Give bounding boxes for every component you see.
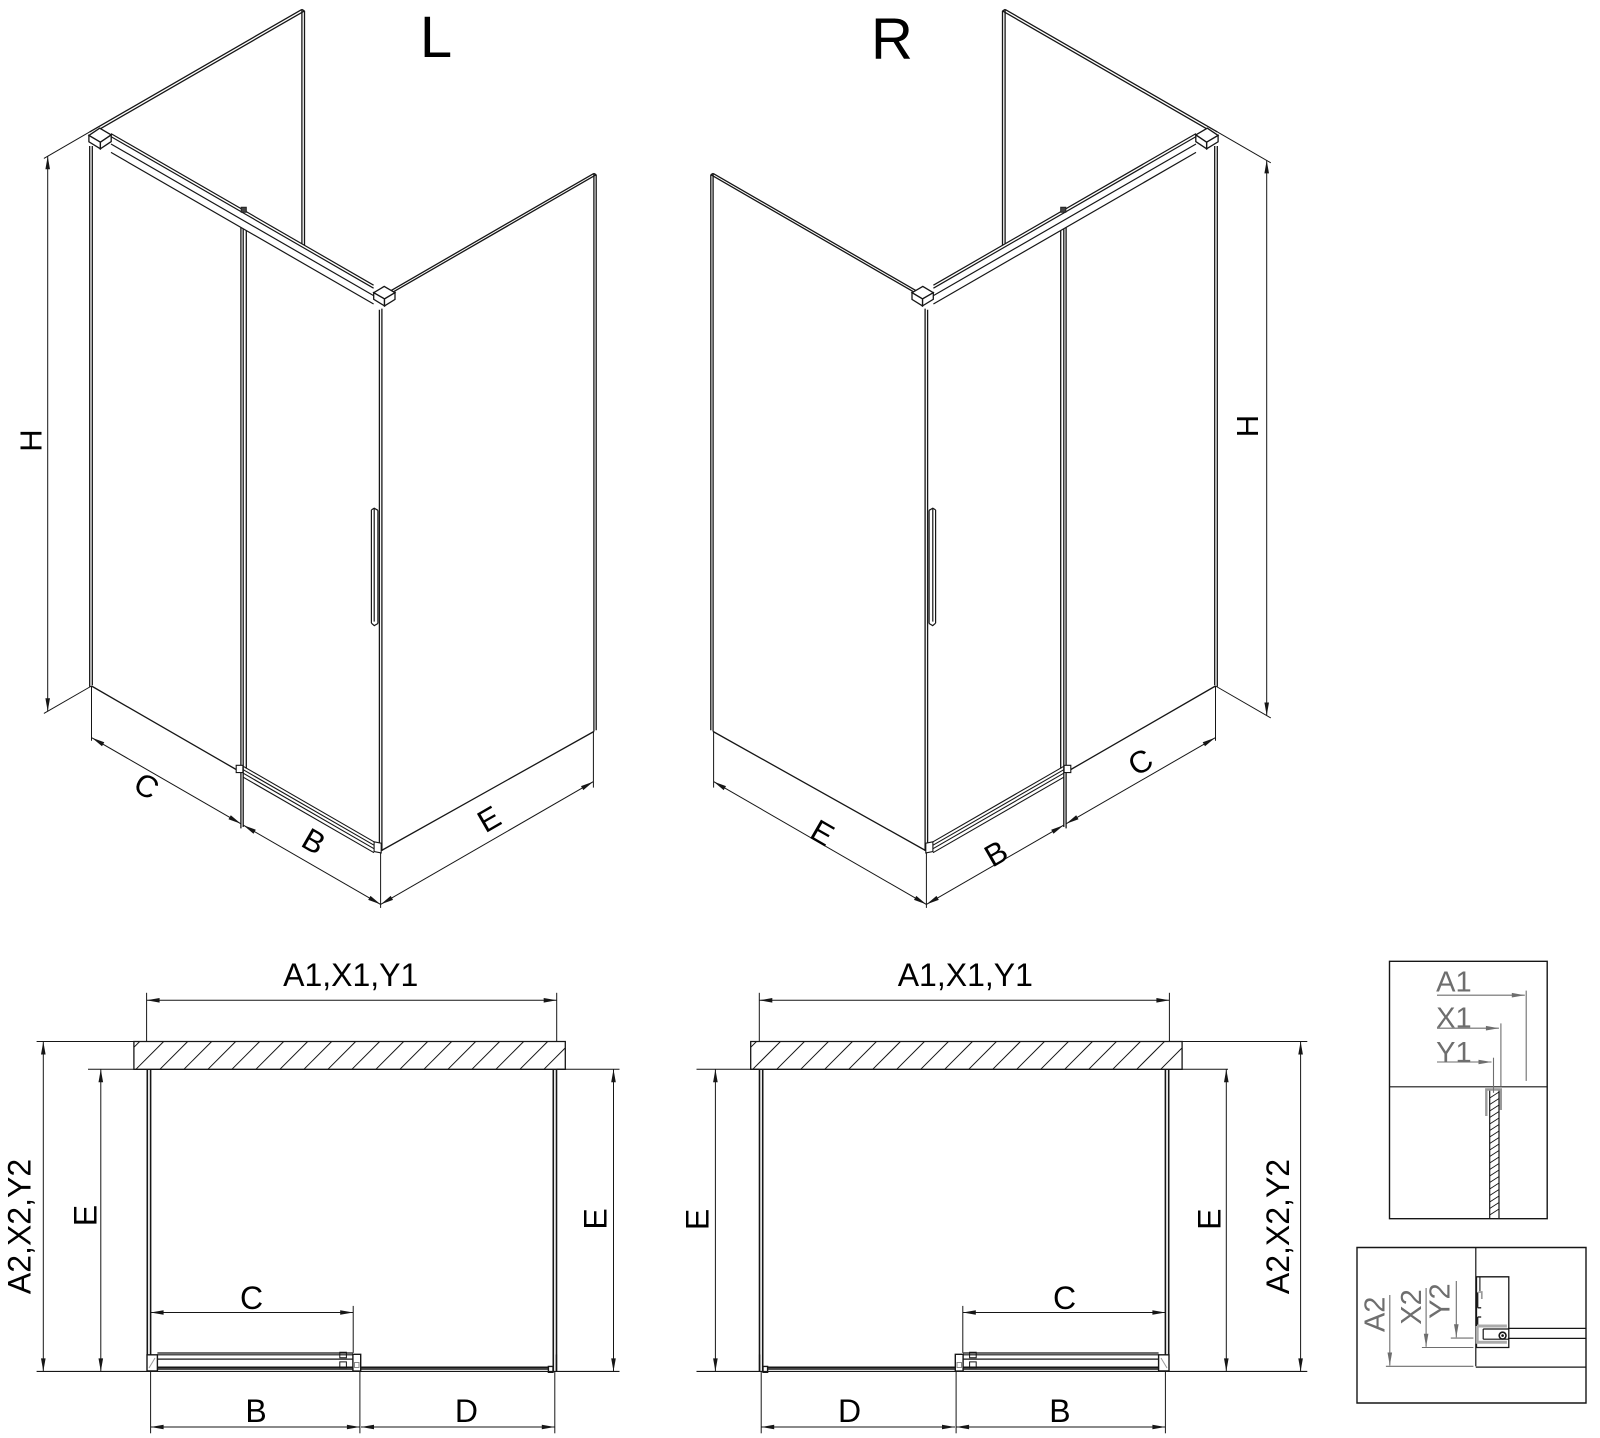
svg-text:A2,X2,Y2: A2,X2,Y2	[1260, 1159, 1296, 1294]
svg-text:X1: X1	[1436, 1002, 1471, 1034]
svg-text:L: L	[420, 5, 452, 70]
svg-text:R: R	[871, 7, 913, 72]
svg-text:E: E	[680, 1209, 716, 1230]
svg-text:A1: A1	[1436, 967, 1471, 999]
svg-text:D: D	[455, 1393, 478, 1429]
svg-text:E: E	[68, 1205, 104, 1226]
svg-text:H: H	[14, 429, 49, 451]
svg-text:D: D	[838, 1393, 861, 1429]
svg-text:C: C	[1053, 1280, 1076, 1316]
svg-text:E: E	[578, 1208, 614, 1229]
svg-text:A2,X2,Y2: A2,X2,Y2	[1, 1159, 37, 1294]
svg-text:A2: A2	[1360, 1297, 1392, 1332]
svg-text:Y2: Y2	[1425, 1283, 1457, 1318]
svg-text:B: B	[1049, 1393, 1070, 1429]
svg-text:A1,X1,Y1: A1,X1,Y1	[283, 957, 418, 993]
svg-text:Y1: Y1	[1436, 1037, 1471, 1069]
svg-text:E: E	[1191, 1209, 1227, 1230]
svg-text:B: B	[245, 1393, 266, 1429]
svg-text:C: C	[240, 1280, 263, 1316]
svg-text:X2: X2	[1396, 1289, 1428, 1324]
svg-text:H: H	[1230, 415, 1265, 437]
svg-text:A1,X1,Y1: A1,X1,Y1	[898, 957, 1033, 993]
